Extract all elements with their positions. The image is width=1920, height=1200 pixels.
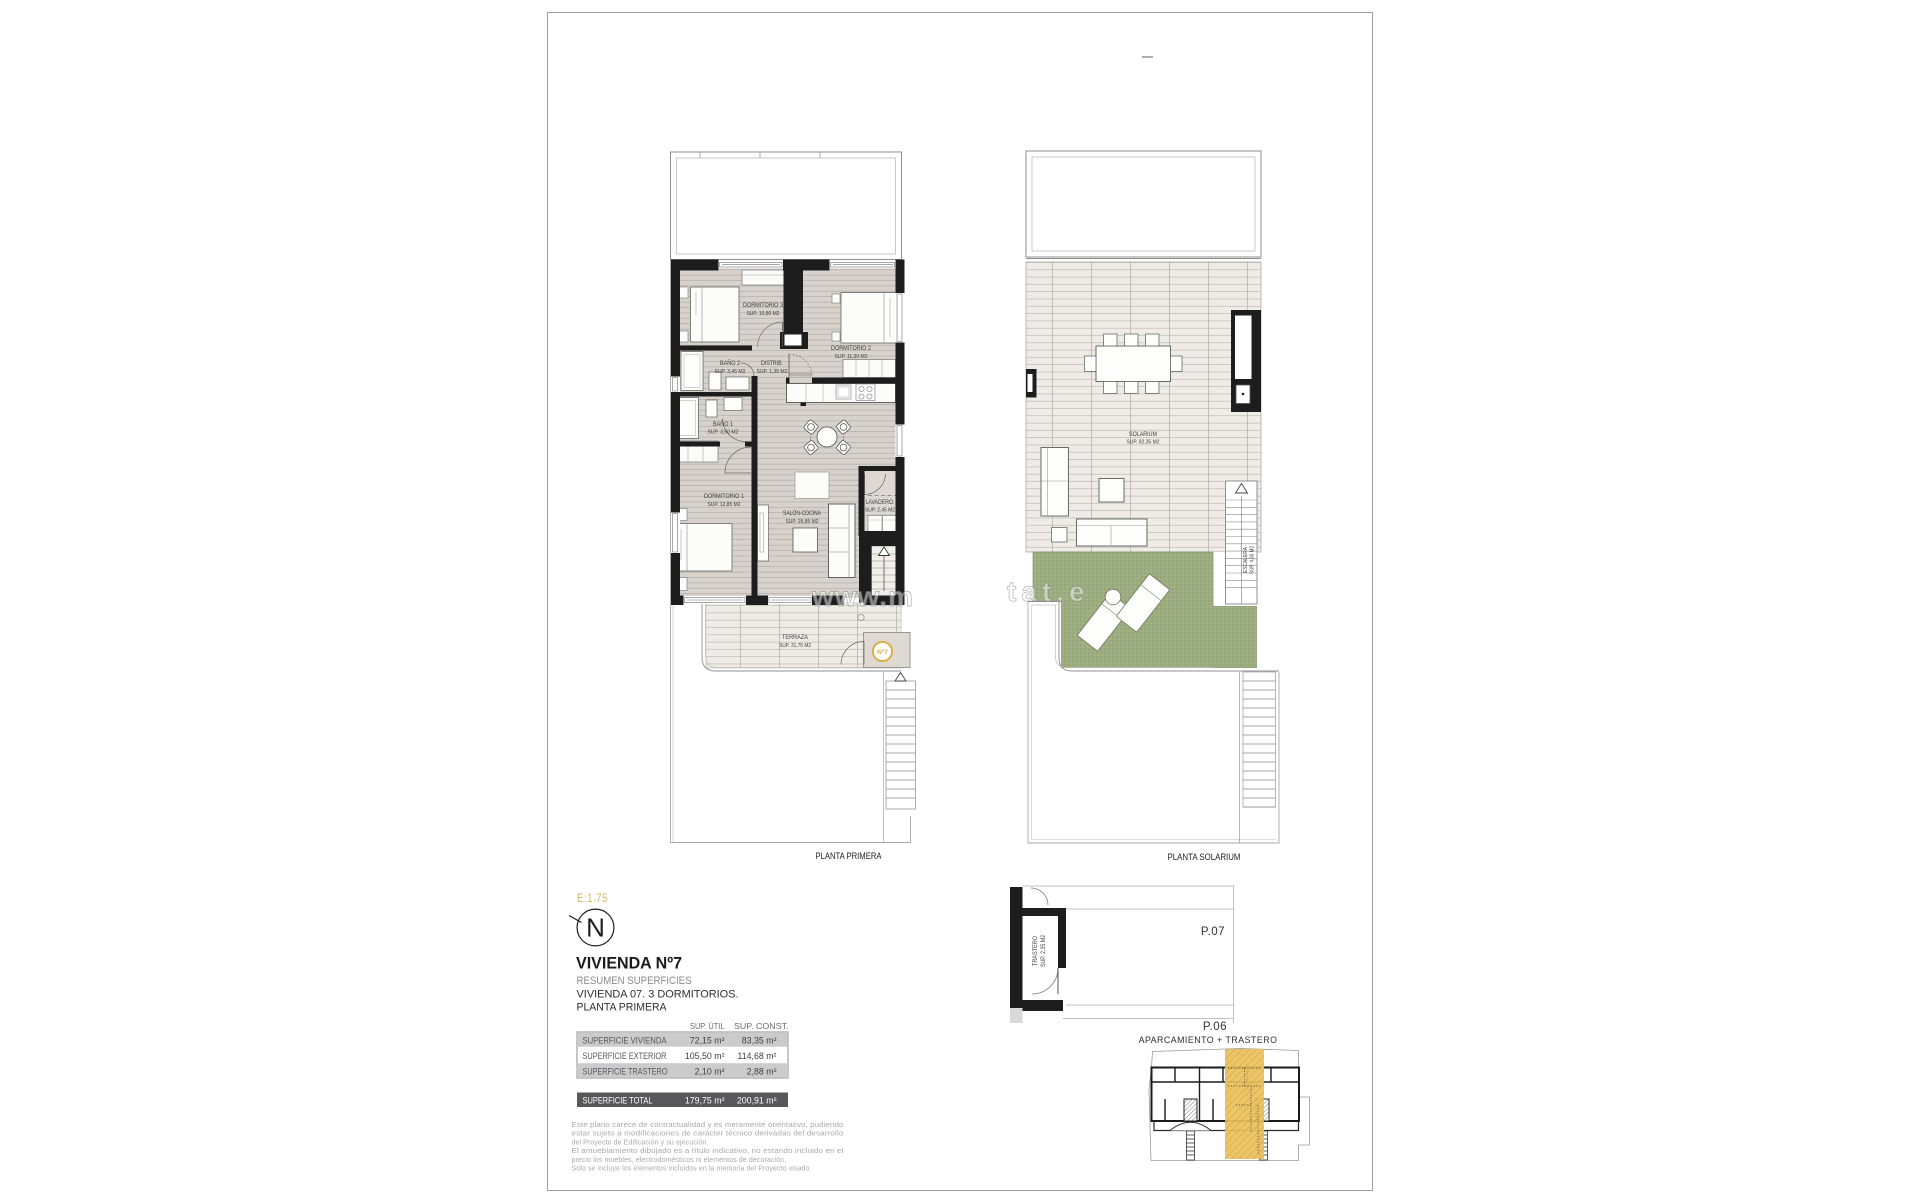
svg-text:VIVIENDA 07. 3 DORMITORIOS.: VIVIENDA 07. 3 DORMITORIOS.	[577, 989, 739, 1001]
svg-text:precio los muebles, electrodom: precio los muebles, electrodomésticos ni…	[572, 1157, 787, 1164]
svg-text:LAVADERO.: LAVADERO.	[866, 500, 895, 506]
svg-text:N: N	[586, 913, 605, 943]
svg-text:SUPERFICIE EXTERIOR: SUPERFICIE EXTERIOR	[583, 1051, 667, 1061]
svg-text:200,91 m²: 200,91 m²	[737, 1095, 777, 1105]
svg-text:APARCAMIENTO + TRASTERO: APARCAMIENTO + TRASTERO	[1139, 1035, 1278, 1045]
svg-text:2,10 m²: 2,10 m²	[695, 1066, 725, 1076]
svg-text:72,15 m²: 72,15 m²	[690, 1036, 725, 1046]
svg-text:SUP. CONST.: SUP. CONST.	[734, 1022, 789, 1031]
svg-text:SUPERFICIE TRASTERO: SUPERFICIE TRASTERO	[583, 1066, 668, 1076]
svg-text:SUP. 31,75 M2: SUP. 31,75 M2	[779, 643, 811, 649]
svg-text:E:1.75: E:1.75	[577, 891, 608, 905]
svg-text:SUP. 3,50 M2: SUP. 3,50 M2	[708, 430, 739, 436]
svg-text:Solo se incluye los elementos: Solo se incluye los elementos incluidos …	[572, 1166, 812, 1173]
svg-text:www.m: www.m	[811, 581, 914, 612]
svg-text:TRASTERO: TRASTERO	[1032, 936, 1039, 966]
svg-text:DORMITORIO 1: DORMITORIO 1	[704, 493, 744, 500]
svg-text:SALÓN-COCINA: SALÓN-COCINA	[783, 508, 822, 517]
svg-text:PLANTA PRIMERA: PLANTA PRIMERA	[577, 1002, 667, 1014]
svg-text:105,50 m²: 105,50 m²	[685, 1051, 725, 1061]
svg-text:estar sujeto a modificaciones: estar sujeto a modificaciones de carácte…	[572, 1131, 844, 1138]
svg-text:P.07: P.07	[1201, 926, 1225, 938]
svg-text:SUP. 82,35 M2: SUP. 82,35 M2	[1127, 440, 1160, 446]
svg-text:DISTRIB.: DISTRIB.	[761, 360, 783, 367]
svg-text:SOLARIUM: SOLARIUM	[1129, 431, 1157, 438]
svg-text:SUP. 3,45 M2: SUP. 3,45 M2	[715, 369, 746, 375]
svg-text:179,75 m²: 179,75 m²	[685, 1095, 725, 1105]
svg-text:114,68 m²: 114,68 m²	[738, 1051, 777, 1061]
svg-text:TERRAZA: TERRAZA	[782, 634, 809, 641]
svg-text:SUP. 4,60 M2: SUP. 4,60 M2	[1250, 546, 1256, 574]
svg-text:BAÑO 2: BAÑO 2	[720, 360, 740, 367]
svg-text:DORMITORIO 2: DORMITORIO 2	[831, 345, 871, 352]
svg-text:SUPERFICIE VIVIENDA: SUPERFICIE VIVIENDA	[583, 1036, 668, 1046]
svg-text:ESCALERA: ESCALERA	[1243, 547, 1249, 573]
svg-text:El amueblamiento dibujado es a: El amueblamiento dibujado es a título in…	[572, 1148, 844, 1155]
svg-text:SUP. 11,30 M2: SUP. 11,30 M2	[835, 354, 868, 360]
svg-text:DORMITORIO 3: DORMITORIO 3	[743, 302, 783, 309]
svg-text:SUPERFICIE TOTAL: SUPERFICIE TOTAL	[583, 1095, 653, 1105]
svg-text:SUP. 1,35 M2: SUP. 1,35 M2	[757, 369, 788, 375]
svg-text:BAÑO 1: BAÑO 1	[713, 421, 733, 428]
svg-text:SUP. ÚTIL: SUP. ÚTIL	[690, 1022, 725, 1031]
svg-text:2,88 m²: 2,88 m²	[747, 1066, 777, 1076]
svg-text:SUP. 10,80 M2: SUP. 10,80 M2	[747, 311, 780, 317]
svg-text:SUP. 2,35 M2: SUP. 2,35 M2	[1041, 934, 1047, 967]
svg-text:83,35 m²: 83,35 m²	[742, 1036, 777, 1046]
svg-text:P.06: P.06	[1203, 1021, 1227, 1033]
svg-text:SUP. 2,45 M2: SUP. 2,45 M2	[865, 508, 895, 514]
svg-text:SUP. 26,85 M2: SUP. 26,85 M2	[786, 519, 819, 525]
svg-text:SUP. 12,85 M2: SUP. 12,85 M2	[708, 502, 741, 508]
svg-text:RESUMEN SUPERFICIES: RESUMEN SUPERFICIES	[577, 975, 692, 987]
svg-text:del Proyecto de Edificación y: del Proyecto de Edificación y su ejecuci…	[572, 1139, 709, 1146]
svg-text:Este plano carece de contractu: Este plano carece de contractualidad y e…	[572, 1122, 844, 1129]
svg-text:PLANTA SOLARIUM: PLANTA SOLARIUM	[1168, 852, 1241, 863]
svg-text:tat.e: tat.e	[1007, 576, 1090, 607]
svg-text:Nº7: Nº7	[877, 649, 888, 656]
svg-text:PLANTA PRIMERA: PLANTA PRIMERA	[816, 851, 882, 862]
svg-text:VIVIENDA Nº7: VIVIENDA Nº7	[576, 954, 682, 973]
